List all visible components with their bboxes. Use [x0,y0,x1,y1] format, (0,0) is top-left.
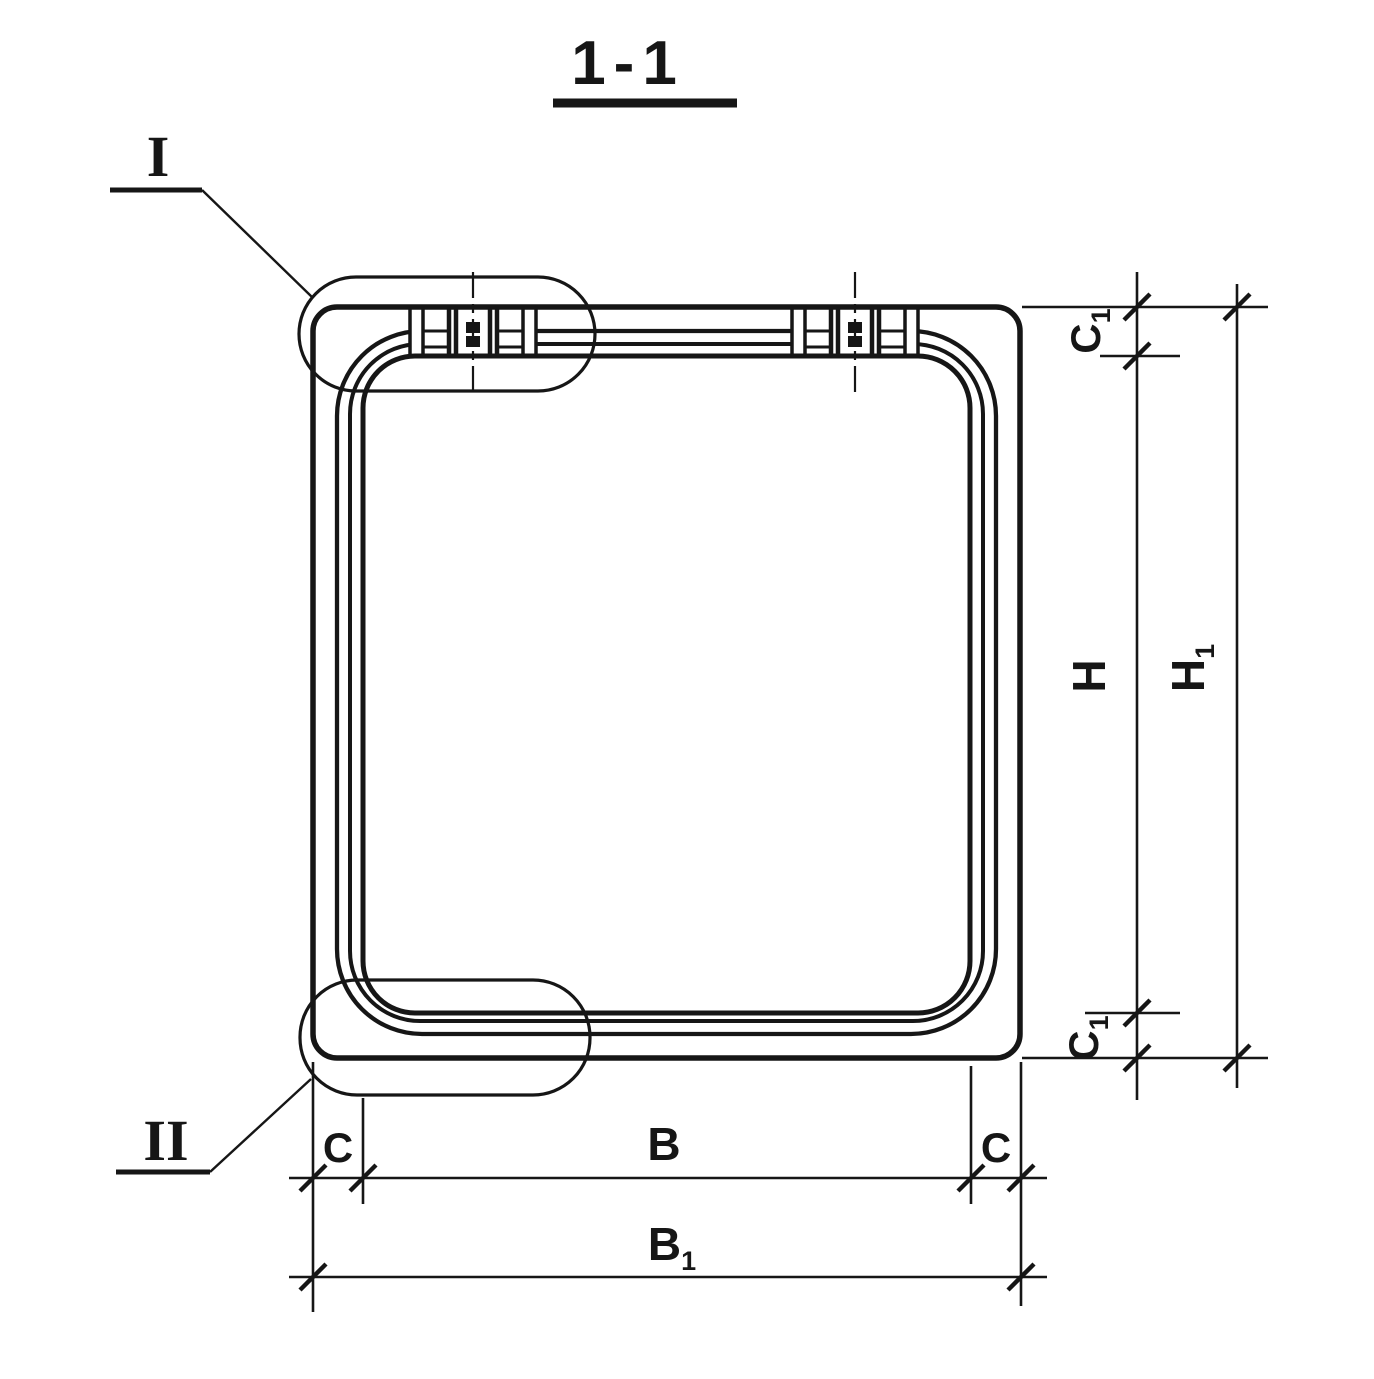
drawing-canvas: 1-1 [0,0,1374,1379]
dim-label-b1: B1 [648,1218,696,1276]
dim-label-b1-main: B [648,1218,681,1270]
dim-label-h1-main: H [1162,659,1214,692]
detail-marker-I-leader [202,190,313,298]
frame-groove-outline-inner [350,344,983,1021]
frame-outer-outline [313,307,1020,1058]
frame-inner-outline [363,356,970,1013]
detail-marker-II-label: II [143,1108,188,1173]
detail-marker-I: I [110,124,313,298]
dim-label-c1-bottom-main: C [1060,1030,1107,1060]
dim-bottom-chain: C B C B1 [289,1062,1047,1312]
dim-label-h: H [1063,659,1115,692]
dim-label-c1-top-main: C [1062,323,1109,353]
dim-label-c-right-main: C [981,1124,1011,1171]
detail-circle-II [300,980,590,1095]
section-title: 1-1 [553,29,737,103]
dim-label-b-main: B [647,1118,680,1170]
dim-label-c-left-main: C [323,1124,353,1171]
dim-label-h1-sub: 1 [1190,644,1220,659]
detail-marker-I-label: I [147,124,170,189]
dim-label-c1-top-sub: 1 [1086,308,1116,323]
dim-label-c1-bottom-sub: 1 [1084,1015,1114,1030]
dim-label-c1-bottom: C1 [1060,1015,1114,1060]
frame-groove-outline-outer [337,331,996,1034]
dim-label-c-right: C [981,1124,1011,1171]
detail-marker-II-leader [210,1079,311,1172]
dim-label-b: B [647,1118,680,1170]
dim-label-c-left: C [323,1124,353,1171]
dim-label-c1-top: C1 [1062,308,1116,353]
dim-label-h-main: H [1063,659,1115,692]
dim-right-chain: C1 H H1 C1 [1022,272,1268,1100]
detail-marker-II: II [116,1079,311,1173]
dim-label-b1-sub: 1 [681,1246,696,1276]
section-title-label: 1-1 [571,29,685,98]
dim-label-h1: H1 [1162,644,1220,692]
top-joint-left [409,272,537,398]
frame [313,307,1020,1058]
top-joint-right [791,272,919,398]
